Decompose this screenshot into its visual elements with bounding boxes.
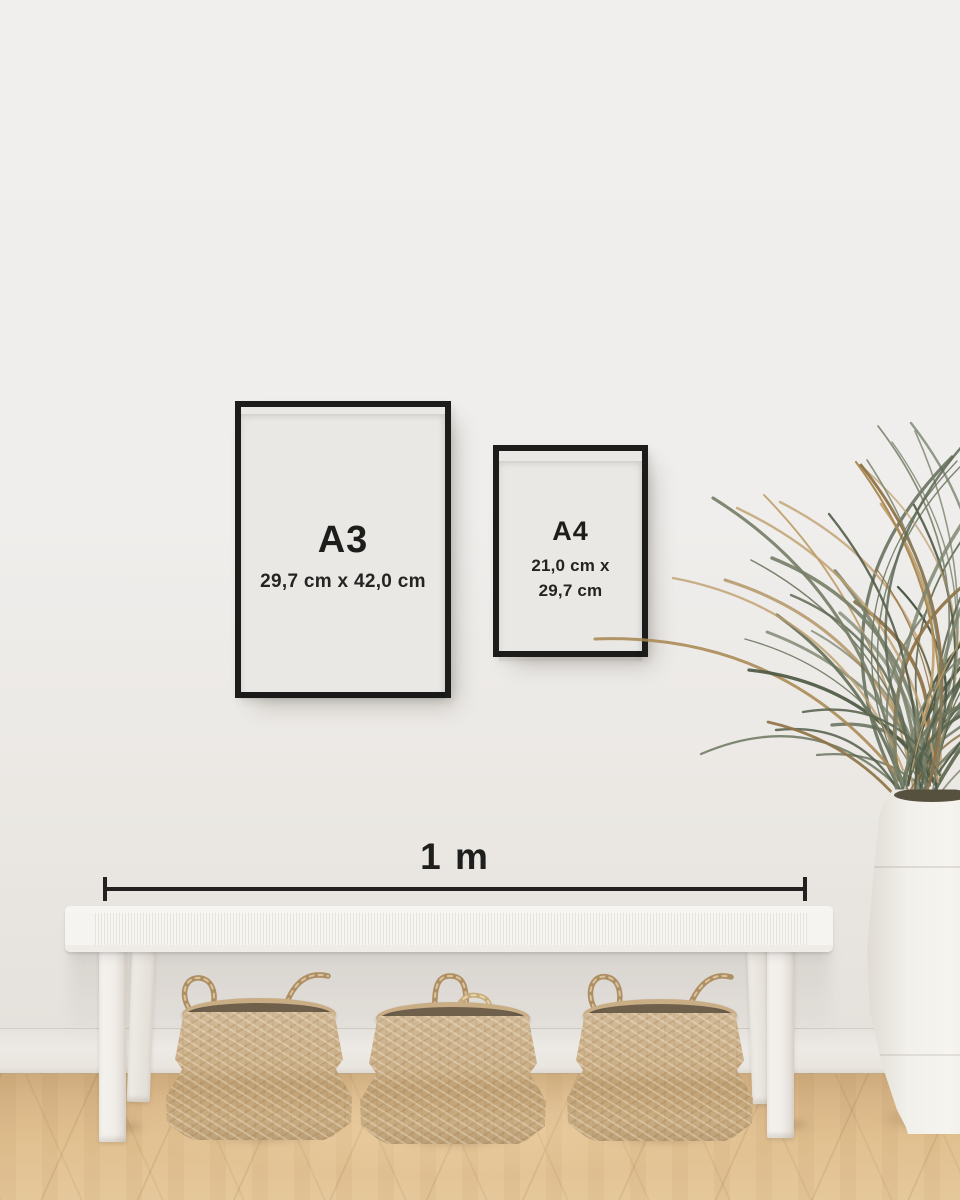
frame-a4-size-label: A4 (552, 518, 589, 545)
frame-a3-dimensions: 29,7 cm x 42,0 cm (260, 571, 426, 593)
ruler-tick-right (803, 877, 807, 901)
frame-a3: A3 29,7 cm x 42,0 cm (235, 401, 451, 698)
frame-a3-paper: A3 29,7 cm x 42,0 cm (241, 414, 445, 699)
basket-right (565, 963, 755, 1141)
room-scene: A3 29,7 cm x 42,0 cm A4 21,0 cm x 29,7 c… (0, 0, 960, 1200)
scale-ruler: 1 m (103, 877, 807, 901)
bench-leg-front-left (99, 950, 126, 1142)
bench-seat (65, 906, 833, 952)
frame-a4-dimensions-line1: 21,0 cm x (531, 554, 609, 579)
bench-leg-front-right (767, 948, 794, 1138)
basket-left-body (164, 1012, 354, 1140)
basket-middle-body (358, 1016, 548, 1144)
ruler-line (103, 887, 807, 891)
frame-a4: A4 21,0 cm x 29,7 cm (493, 445, 648, 657)
frame-a4-paper: A4 21,0 cm x 29,7 cm (499, 461, 642, 661)
frame-a3-size-label: A3 (318, 521, 369, 559)
ruler-label: 1 m (103, 838, 807, 875)
basket-left (164, 962, 354, 1140)
basket-middle (358, 966, 548, 1144)
frame-a4-dimensions-line2: 29,7 cm (531, 579, 609, 604)
basket-right-body (565, 1013, 755, 1141)
frame-a4-dimensions: 21,0 cm x 29,7 cm (531, 554, 609, 603)
ruler-tick-left (103, 877, 107, 901)
